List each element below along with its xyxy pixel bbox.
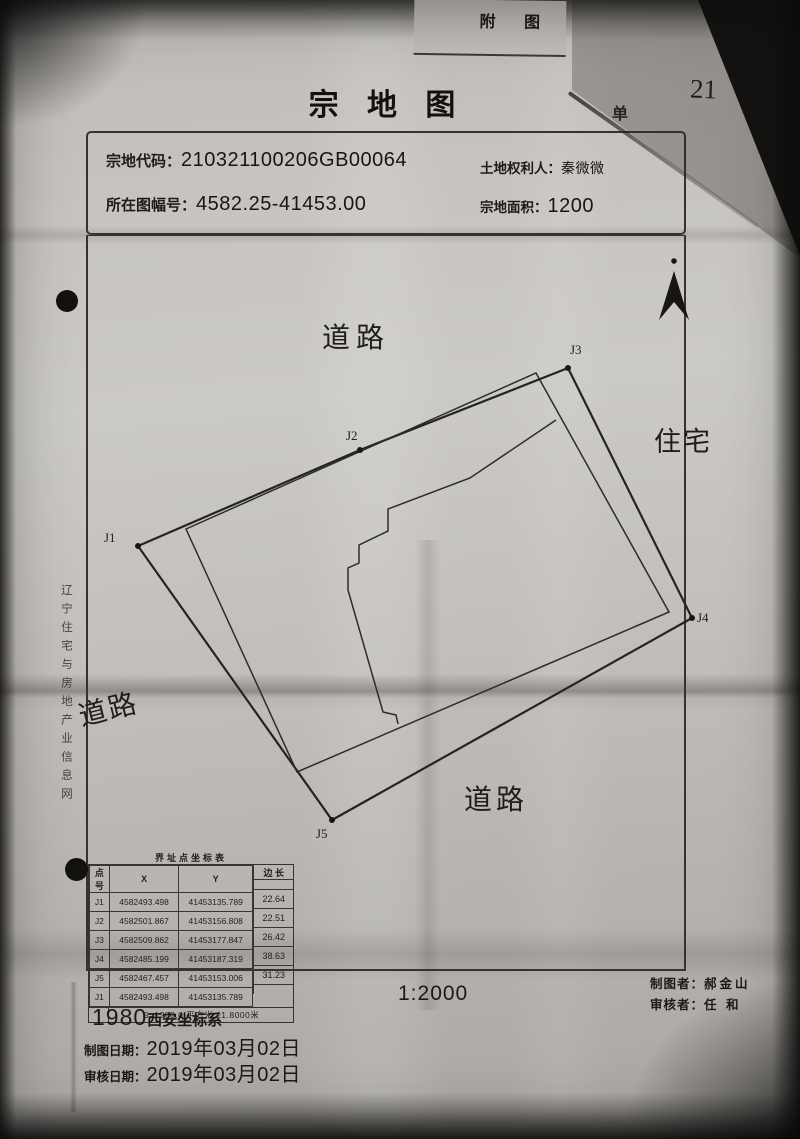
table-row: J14582493.49841453135.789 — [90, 893, 253, 912]
outer-boundary-polygon — [138, 368, 692, 820]
coordinate-system: 1980西安坐标系 — [92, 1004, 222, 1031]
road-label-top: 道路 — [322, 316, 390, 356]
boundary-table-body: J14582493.49841453135.789J24582501.86741… — [90, 893, 253, 1007]
col-header-x: X — [109, 866, 179, 893]
point-label-j3: J3 — [570, 342, 582, 358]
edge-length-cell: 31.23 — [254, 966, 294, 985]
table-row: J24582501.86741453156.808 — [90, 912, 253, 931]
photo-right-edge — [772, 0, 800, 1139]
inner-boundary-polygon — [186, 373, 669, 772]
edge-cells: 22.6422.5126.4238.6331.23 — [254, 890, 294, 985]
scanned-document-photo: 附 图 宗 地 图 21 单 宗地代码：210321100206GB00064 … — [0, 0, 800, 1139]
boundary-point-j4 — [689, 615, 695, 621]
boundary-point-j1 — [135, 543, 141, 549]
review-date-row: 审核日期：2019年03月02日 — [84, 1058, 301, 1087]
edge-spacer — [254, 880, 294, 890]
boundary-point-j2 — [357, 447, 363, 453]
boundary-table-title: 界址点坐标表 — [88, 851, 294, 864]
edge-length-cell: 22.51 — [254, 909, 294, 928]
edge-length-column: 边 长 22.6422.5126.4238.6331.23 — [253, 865, 294, 994]
table-header-row: 点 号 X Y — [90, 866, 253, 893]
point-label-j5: J5 — [316, 826, 328, 842]
road-label-bottom: 道路 — [464, 778, 528, 818]
table-row: J44582485.19941453187.319 — [90, 950, 253, 969]
punch-hole — [65, 858, 88, 881]
coordinate-system-name: 西安坐标系 — [147, 1012, 222, 1029]
review-date-label: 审核日期： — [84, 1070, 147, 1084]
col-header-edge: 边 长 — [254, 865, 294, 880]
edge-length-cell: 22.64 — [254, 890, 294, 909]
boundary-table: 界址点坐标表 点 号 X Y J14582493.49841453135.789… — [88, 851, 294, 1023]
point-label-j4: J4 — [697, 610, 709, 626]
col-header-point: 点 号 — [90, 866, 110, 893]
edge-length-cell: 38.63 — [254, 947, 294, 966]
table-row: J34582509.86241453177.847 — [90, 931, 253, 950]
boundary-table-grid: 点 号 X Y J14582493.49841453135.789J245825… — [89, 865, 253, 1007]
made-date-value: 2019年03月02日 — [147, 1038, 301, 1060]
north-arrow-icon — [659, 258, 689, 320]
boundary-point-j5 — [329, 817, 335, 823]
edge-length-cell: 26.42 — [254, 928, 294, 947]
point-label-j1: J1 — [104, 530, 116, 546]
col-header-y: Y — [179, 866, 253, 893]
residence-label: 住宅 — [654, 420, 712, 459]
review-date-value: 2019年03月02日 — [147, 1064, 301, 1086]
map-scale: 1:2000 — [398, 982, 468, 1006]
made-date-label: 制图日期： — [84, 1044, 147, 1058]
punch-hole — [56, 290, 78, 312]
table-row: J54582467.45741453153.006 — [90, 969, 253, 988]
made-date-row: 制图日期：2019年03月02日 — [84, 1032, 301, 1061]
boundary-point-j3 — [565, 365, 571, 371]
stepped-building-line — [348, 420, 556, 724]
point-label-j2: J2 — [346, 428, 358, 444]
coordinate-system-year: 1980 — [92, 1004, 147, 1030]
photo-corner-shadow — [620, 979, 800, 1139]
